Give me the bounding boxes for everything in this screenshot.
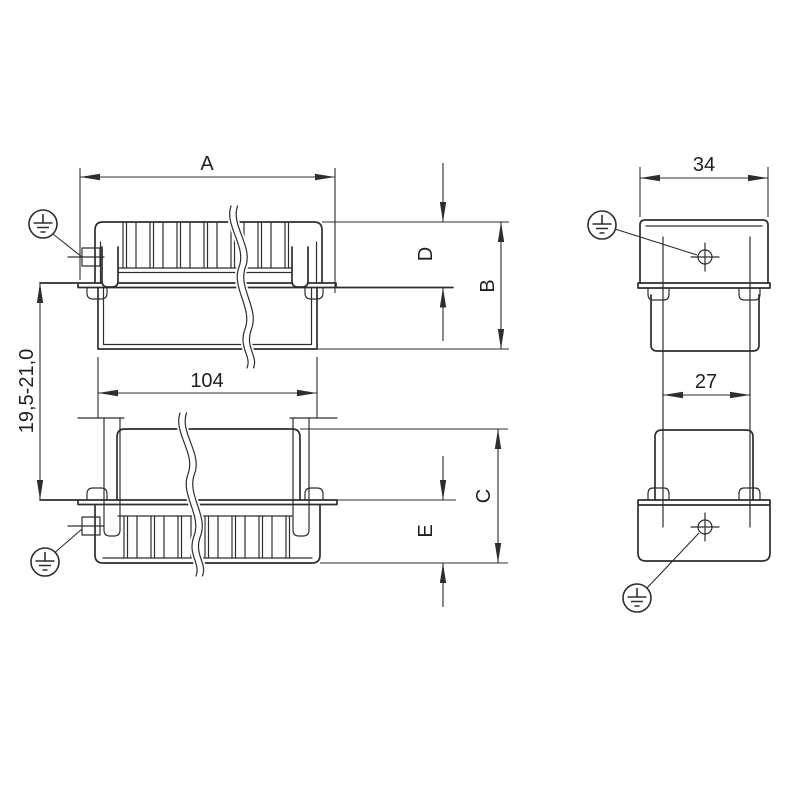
break-mask-lower	[182, 413, 200, 576]
screw-bump-upper-right	[305, 288, 323, 299]
hood-inner-walls	[101, 242, 317, 283]
front-view	[40, 206, 453, 576]
contact-hatch-upper	[123, 223, 289, 268]
dim-label-e: E	[415, 524, 437, 537]
insert-outline	[117, 429, 300, 500]
dim-label-27: 27	[695, 371, 717, 393]
crosshair-upper-icon	[691, 243, 719, 271]
hood-lower-section	[98, 288, 317, 349]
leader-lower-left	[56, 529, 83, 552]
dim-label-104: 104	[190, 370, 223, 392]
earth-symbol-upper-left-icon	[29, 210, 57, 238]
side-insert-outline	[655, 430, 753, 500]
leader-upper-right	[615, 229, 697, 255]
earth-symbol-lower-right-icon	[623, 584, 651, 612]
dimensions	[37, 163, 768, 607]
side-hood-outline	[640, 220, 768, 283]
connector-technical-drawing: A 104 19,5-21,0 D B C E 34 27	[0, 0, 800, 800]
contact-base-lines-upper	[118, 268, 292, 273]
leader-upper-left	[53, 234, 82, 257]
guide-hook-upper-right	[292, 247, 308, 287]
side-screw-bump-lower-left	[648, 488, 669, 500]
dimension-labels: A 104 19,5-21,0 D B C E 34 27	[16, 153, 717, 538]
contact-hatch-lower	[124, 516, 290, 558]
earth-symbol-upper-right-icon	[588, 211, 616, 239]
dim-label-a: A	[200, 153, 214, 175]
hood-lower-inner	[104, 288, 312, 345]
guide-hook-upper-left	[102, 247, 118, 287]
dim-label-34: 34	[693, 154, 715, 176]
dim-d	[440, 163, 446, 341]
guide-hook-lower-right	[293, 418, 309, 536]
side-hood-lower-section	[651, 295, 759, 351]
earth-symbol-lower-left-icon	[31, 548, 59, 576]
dim-label-c: C	[473, 489, 495, 503]
upper-hood	[40, 206, 453, 368]
dim-label-b: B	[477, 279, 499, 292]
dim-label-spacing: 19,5-21,0	[16, 349, 38, 434]
drawing-page: A 104 19,5-21,0 D B C E 34 27	[0, 0, 800, 800]
screw-bump-lower-right	[305, 488, 323, 500]
dim-label-d: D	[415, 247, 437, 261]
earth-symbols	[29, 210, 699, 612]
dim-e	[337, 456, 456, 607]
lower-housing	[40, 413, 337, 576]
